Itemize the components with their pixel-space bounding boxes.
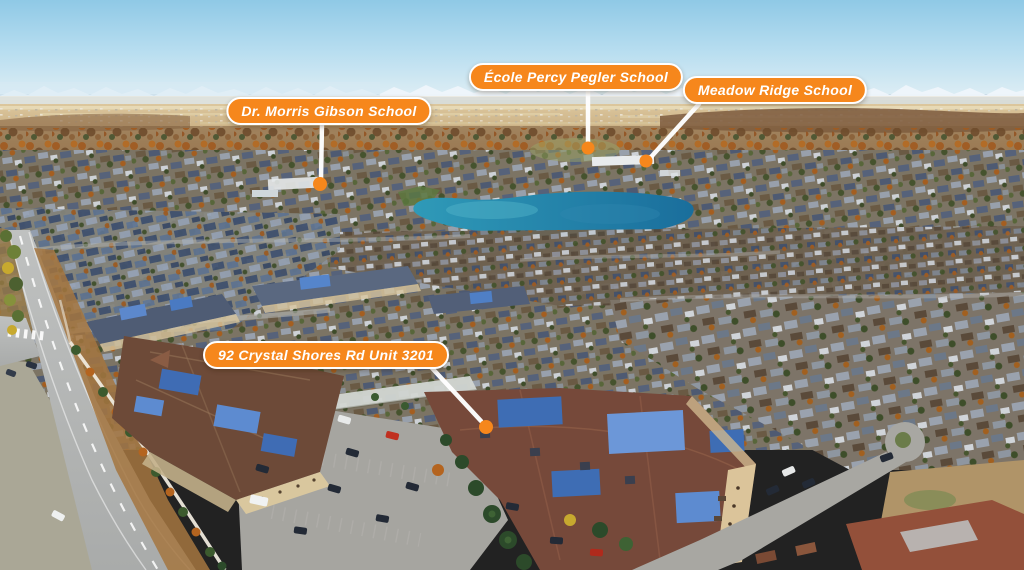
school-label-text: Dr. Morris Gibson School — [241, 103, 416, 119]
school-label-text: Meadow Ridge School — [698, 82, 852, 98]
school-label-ecole-percy-pegler: École Percy Pegler School — [469, 63, 683, 91]
property-address-label: 92 Crystal Shores Rd Unit 3201 — [203, 341, 449, 369]
aerial-map-view: Dr. Morris Gibson School École Percy Peg… — [0, 0, 1024, 570]
school-label-dr-morris-gibson: Dr. Morris Gibson School — [226, 97, 431, 125]
property-address-text: 92 Crystal Shores Rd Unit 3201 — [218, 347, 434, 363]
school-label-text: École Percy Pegler School — [484, 69, 668, 85]
school-label-meadow-ridge: Meadow Ridge School — [683, 76, 867, 104]
